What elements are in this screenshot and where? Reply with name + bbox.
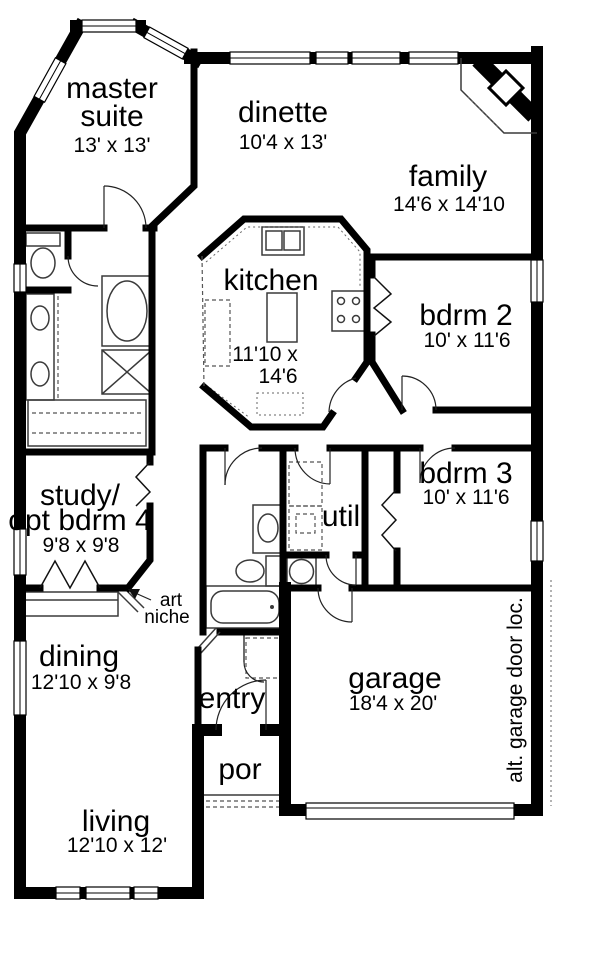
window: [86, 887, 130, 899]
window: [134, 887, 158, 899]
label-alt-garage-door: alt. garage door loc.: [504, 597, 527, 783]
label-entry: entry: [199, 682, 266, 715]
window: [352, 52, 400, 64]
dims-dining: 12'10 x 9'8: [31, 671, 131, 694]
dims-dinette: 10'4 x 13': [239, 131, 328, 154]
floor-plan-drawing: master suite 13' x 13' dinette 10'4 x 13…: [0, 0, 600, 953]
label-family: family: [409, 160, 487, 193]
dims-master-suite: 13' x 13': [74, 134, 151, 157]
window: [14, 641, 26, 715]
label-bdrm2: bdrm 2: [419, 299, 512, 332]
garage-door: [306, 803, 514, 819]
dims-kitchen-2: 14'6: [258, 365, 297, 388]
dims-family: 14'6 x 14'10: [393, 193, 505, 216]
window: [56, 887, 80, 899]
label-master-suite-2: suite: [80, 100, 143, 133]
label-study-2: opt bdrm 4: [8, 504, 151, 537]
floor-plan: master suite 13' x 13' dinette 10'4 x 13…: [0, 0, 600, 953]
window: [531, 260, 543, 302]
window: [531, 521, 543, 561]
dims-kitchen: 11'10 x: [232, 343, 298, 366]
window: [230, 52, 310, 64]
label-garage: garage: [348, 662, 441, 695]
dims-garage: 18'4 x 20': [349, 692, 438, 715]
dims-living: 12'10 x 12': [67, 834, 167, 857]
dims-bdrm2: 10' x 11'6: [423, 329, 510, 352]
label-dining: dining: [39, 640, 119, 673]
label-util: util: [322, 500, 360, 533]
window: [14, 264, 26, 292]
label-porch: por: [218, 753, 261, 786]
dims-study: 9'8 x 9'8: [43, 534, 120, 557]
window: [409, 52, 458, 64]
window: [82, 20, 136, 32]
window: [316, 52, 348, 64]
label-art-niche-2: niche: [144, 607, 189, 628]
label-kitchen: kitchen: [223, 264, 318, 297]
label-dinette: dinette: [238, 96, 328, 129]
dims-bdrm3: 10' x 11'6: [422, 486, 509, 509]
